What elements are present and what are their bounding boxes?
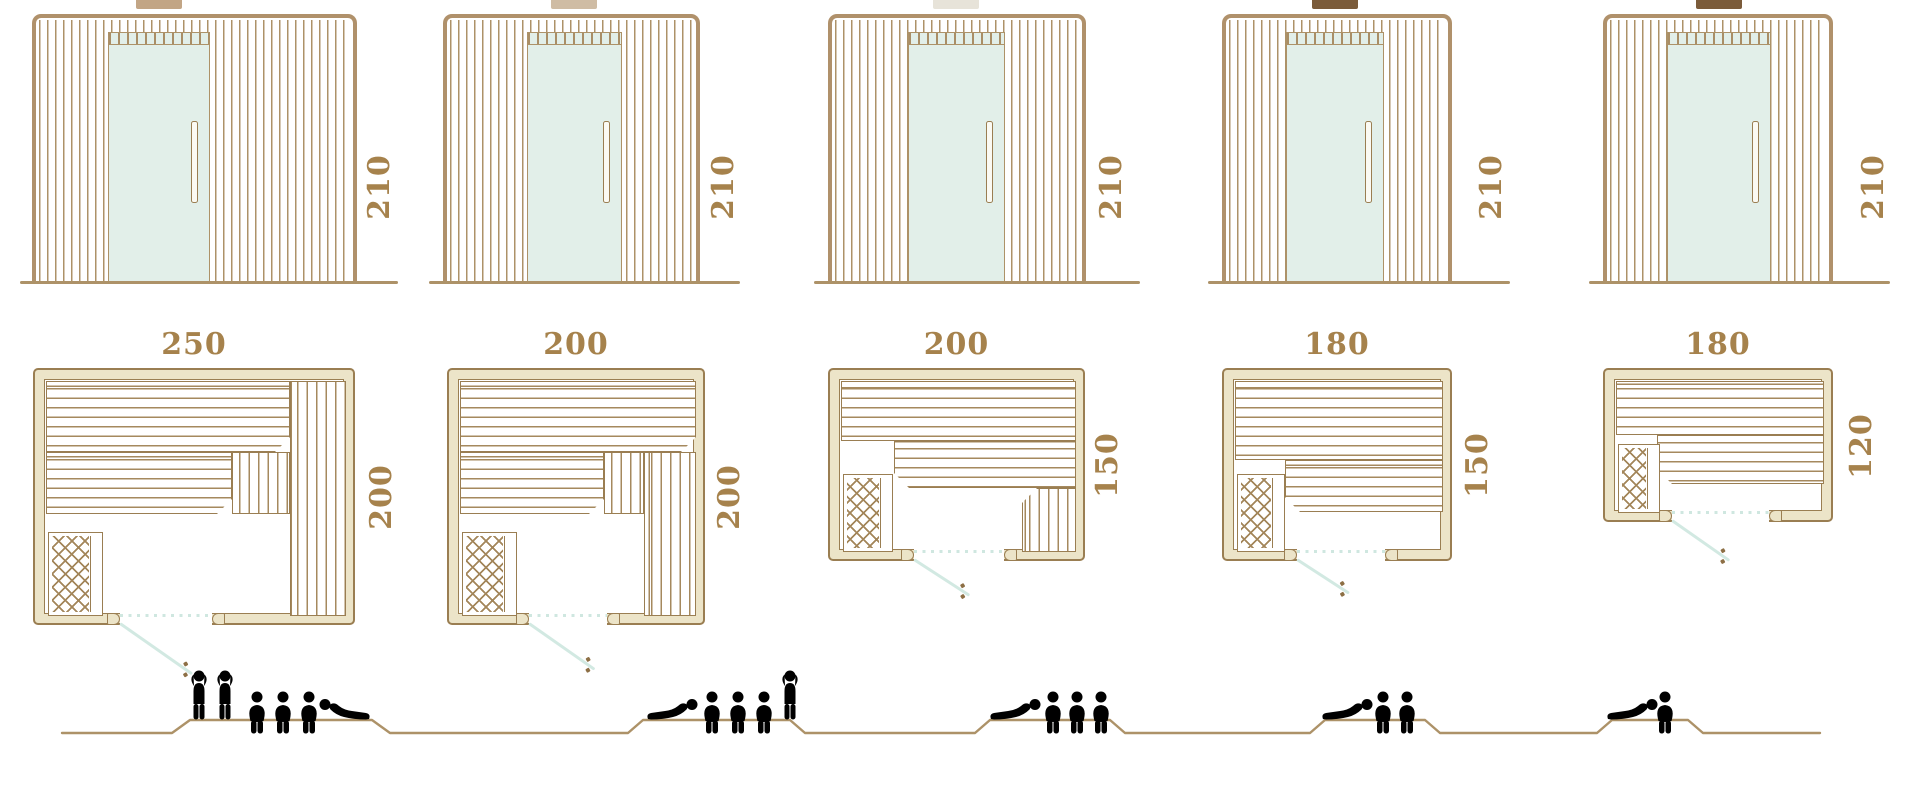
door-jamb [1385, 549, 1398, 561]
upper-bench [460, 381, 696, 452]
upper-bench [1616, 381, 1824, 435]
lower-bench [894, 441, 1076, 488]
roof-cap [1696, 0, 1742, 9]
corner-bench [232, 452, 290, 514]
sitting-person-icon [1392, 690, 1422, 734]
lower-bench [460, 452, 604, 514]
heater-guard [90, 536, 99, 612]
width-dimension-label: 180 [1603, 328, 1833, 362]
lower-bench [46, 452, 232, 514]
lying-person-icon [318, 696, 372, 722]
ground-line [20, 281, 398, 284]
sauna-4-front-elevation [1222, 14, 1452, 281]
roof-cap [136, 0, 182, 9]
upper-bench [1235, 381, 1443, 460]
sauna-2-floor-plan [447, 368, 705, 625]
door-transom-ticks [1287, 33, 1383, 45]
heater-crosshatch [52, 536, 89, 612]
lower-bench [1285, 460, 1443, 512]
door-jamb [1004, 549, 1017, 561]
sauna-1-front-elevation [32, 14, 357, 281]
heater [48, 532, 103, 616]
corner-bench [604, 452, 644, 514]
door-opening [1297, 546, 1385, 562]
door-handle [603, 121, 610, 203]
sauna-3-floor-plan [828, 368, 1085, 561]
glass-door [527, 32, 622, 281]
width-dimension-label: 250 [33, 328, 355, 362]
glass-door [908, 32, 1005, 281]
upper-bench [46, 381, 290, 452]
upper-bench [841, 381, 1076, 441]
standing-person-icon [186, 669, 212, 721]
depth-dimension-label: 150 [1091, 415, 1125, 515]
door-leaf [1671, 519, 1730, 562]
depth-dimension-label: 200 [365, 447, 399, 547]
ground-line [1589, 281, 1890, 284]
door-handle [1752, 121, 1759, 203]
sauna-5-front-elevation [1603, 14, 1833, 281]
heater-crosshatch [1241, 478, 1271, 548]
door-jamb [516, 613, 529, 625]
ground-line [1208, 281, 1510, 284]
heater-guard [1272, 478, 1281, 548]
heater [462, 532, 517, 616]
step-bench [1022, 488, 1076, 552]
depth-dimension-label: 120 [1845, 396, 1879, 496]
side-bench [644, 452, 696, 616]
heater-guard [1647, 448, 1656, 509]
door-jamb [107, 613, 120, 625]
door-jamb [212, 613, 225, 625]
roof-cap [1312, 0, 1358, 9]
door-handle [191, 121, 198, 203]
heater-guard [880, 478, 889, 548]
side-bench [290, 381, 346, 616]
roof-cap [933, 0, 979, 9]
door-opening [120, 610, 212, 626]
ground-line [429, 281, 740, 284]
door-transom-ticks [909, 33, 1004, 45]
sauna-1-floor-plan [33, 368, 355, 625]
door-transom-ticks [1668, 33, 1770, 45]
height-dimension-label: 210 [1857, 137, 1891, 237]
standing-person-icon [212, 669, 238, 721]
heater-crosshatch [466, 536, 503, 612]
heater [843, 474, 893, 552]
door-jamb [607, 613, 620, 625]
door-transom-ticks [109, 33, 209, 45]
door-threshold-dotted-line [529, 614, 607, 617]
heater-crosshatch [1622, 448, 1646, 509]
sauna-size-diagram: 210 210 210 210 [0, 0, 1920, 789]
door-jamb [1284, 549, 1297, 561]
lower-bench [1657, 435, 1824, 484]
door-handle [1365, 121, 1372, 203]
door-threshold-dotted-line [120, 614, 212, 617]
door-threshold-dotted-line [1297, 550, 1385, 553]
lying-person-icon [1320, 696, 1374, 722]
door-leaf [528, 622, 595, 670]
roof-cap [551, 0, 597, 9]
heater [1618, 444, 1660, 513]
glass-door [108, 32, 210, 281]
sitting-person-icon [749, 690, 779, 734]
door-threshold-dotted-line [914, 550, 1004, 553]
depth-dimension-label: 200 [713, 447, 747, 547]
door-jamb [1769, 510, 1782, 522]
door-leaf [913, 558, 970, 597]
height-dimension-label: 210 [1475, 137, 1509, 237]
door-jamb [901, 549, 914, 561]
door-jamb [1659, 510, 1672, 522]
height-dimension-label: 210 [363, 137, 397, 237]
glass-door [1667, 32, 1771, 281]
heater-crosshatch [847, 478, 879, 548]
width-dimension-label: 180 [1222, 328, 1452, 362]
door-opening [1672, 507, 1769, 523]
sauna-4-floor-plan [1222, 368, 1452, 561]
glass-door [1286, 32, 1384, 281]
door-opening [529, 610, 607, 626]
width-dimension-label: 200 [447, 328, 705, 362]
sauna-5-floor-plan [1603, 368, 1833, 522]
sitting-person-icon [1650, 690, 1680, 734]
sauna-2-front-elevation [443, 14, 700, 281]
door-handle [986, 121, 993, 203]
ground-line [814, 281, 1140, 284]
heater-guard [504, 536, 513, 612]
height-dimension-label: 210 [1095, 137, 1129, 237]
height-dimension-label: 210 [707, 137, 741, 237]
sauna-3-front-elevation [828, 14, 1086, 281]
depth-dimension-label: 150 [1461, 415, 1495, 515]
lying-person-icon [988, 696, 1042, 722]
heater [1237, 474, 1285, 552]
door-leaf [1296, 558, 1350, 594]
width-dimension-label: 200 [828, 328, 1085, 362]
sitting-person-icon [1086, 690, 1116, 734]
door-opening [914, 546, 1004, 562]
door-threshold-dotted-line [1672, 511, 1769, 514]
standing-person-icon [777, 669, 803, 721]
door-transom-ticks [528, 33, 621, 45]
door-leaf [119, 622, 193, 675]
lying-person-icon [645, 696, 699, 722]
